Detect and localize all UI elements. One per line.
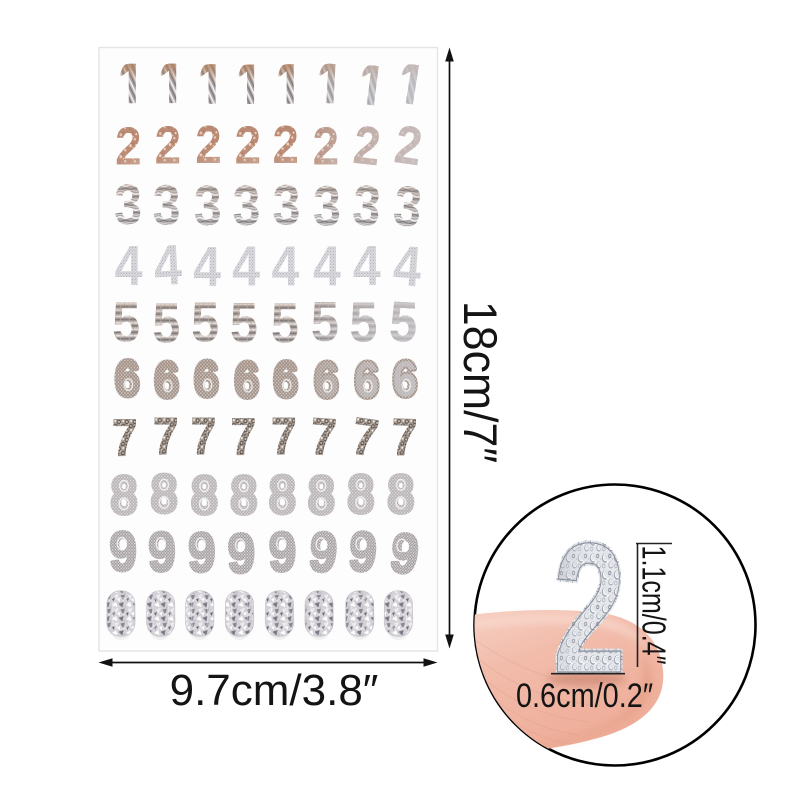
svg-text:9.7cm/3.8″: 9.7cm/3.8″ <box>170 666 379 715</box>
svg-text:0.6cm/0.2″: 0.6cm/0.2″ <box>516 676 653 715</box>
svg-text:18cm/7″: 18cm/7″ <box>454 301 506 463</box>
svg-text:1.1cm/0.4″: 1.1cm/0.4″ <box>635 546 672 665</box>
